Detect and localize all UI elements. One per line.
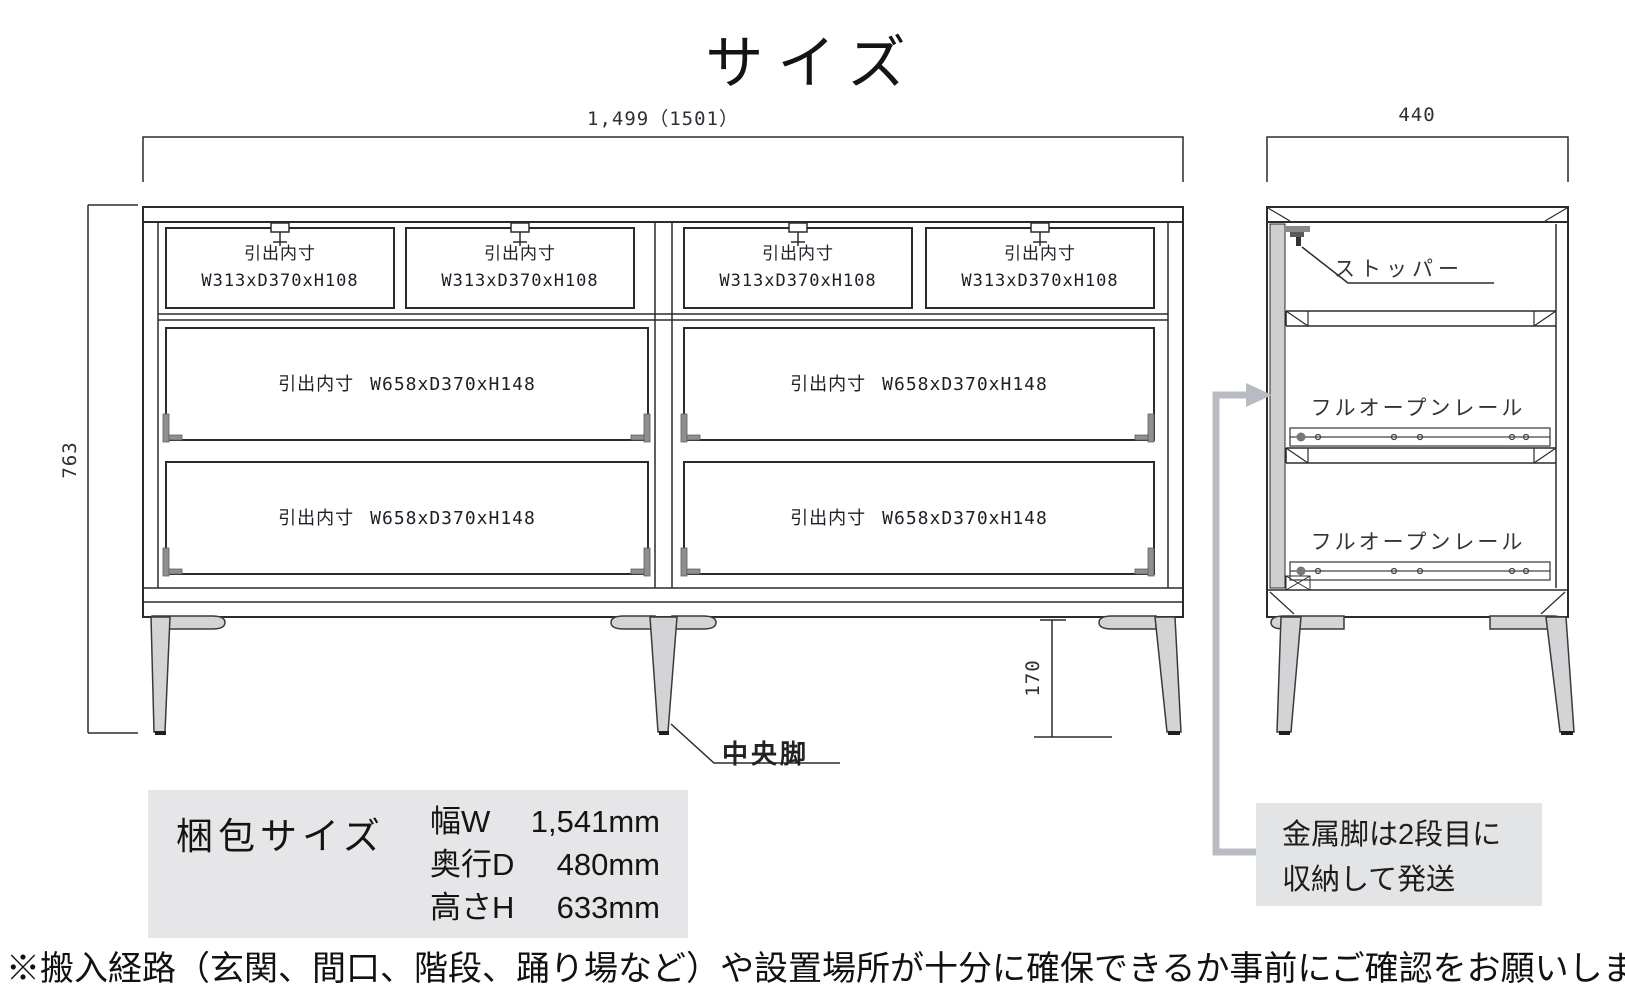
footer-note: ※搬入経路（玄関、間口、階段、踊り場など）や設置場所が十分に確保できるか事前にご… (6, 941, 1625, 990)
size-diagram-page: サイズ (0, 0, 1625, 1007)
small-drawer-label: 引出内寸 W313xD370xH108 (684, 228, 912, 308)
large-drawer-label: 引出内寸 W658xD370xH148 (684, 328, 1154, 440)
shipping-note-box: 金属脚は2段目に 収納して発送 (1256, 803, 1542, 906)
side-depth-dimension: 440 (1377, 104, 1457, 126)
small-drawer-label: 引出内寸 W313xD370xH108 (166, 228, 394, 308)
packing-row: 幅W 1,541mm (430, 800, 660, 843)
drawer-size: W313xD370xH108 (961, 268, 1118, 295)
drawer-size: W313xD370xH108 (201, 268, 358, 295)
large-drawer-label: 引出内寸 W658xD370xH148 (166, 462, 648, 574)
drawer-size: W313xD370xH108 (719, 268, 876, 295)
packing-row: 高さH 633mm (430, 886, 660, 929)
shipping-note-arrow (1216, 383, 1272, 852)
small-drawer-label: 引出内寸 W313xD370xH108 (926, 228, 1154, 308)
packing-row-value: 480mm (557, 843, 660, 886)
front-leg-height-dimension: 170 (1020, 648, 1046, 708)
shipping-note-line: 金属脚は2段目に (1282, 813, 1542, 858)
drawer-size: W658xD370xH148 (882, 505, 1048, 532)
packing-size-title: 梱包サイズ (176, 806, 385, 860)
full-open-rail-label: フルオープンレール (1303, 392, 1533, 422)
side-legs (1271, 616, 1574, 735)
full-open-rail-label: フルオープンレール (1303, 526, 1533, 556)
drawer-name: 引出内寸 (1004, 241, 1076, 268)
large-drawer-label: 引出内寸 W658xD370xH148 (684, 462, 1154, 574)
drawer-name: 引出内寸 (278, 505, 354, 532)
drawer-size: W658xD370xH148 (370, 371, 536, 398)
drawer-size: W313xD370xH108 (441, 268, 598, 295)
front-width-dimension: 1,499（1501） (493, 104, 833, 131)
drawer-name: 引出内寸 (790, 371, 866, 398)
center-leg-label: 中央脚 (722, 734, 809, 771)
side-dimension-lines (1267, 137, 1568, 182)
full-open-rail-graphics (1290, 428, 1550, 580)
packing-row-value: 633mm (557, 886, 660, 929)
packing-row: 奥行D 480mm (430, 843, 660, 886)
drawer-name: 引出内寸 (278, 371, 354, 398)
large-drawer-label: 引出内寸 W658xD370xH148 (166, 328, 648, 440)
drawer-name: 引出内寸 (790, 505, 866, 532)
stopper-label: ストッパー (1334, 253, 1464, 283)
front-height-dimension: 763 (57, 430, 83, 490)
packing-row-label: 奥行D (430, 843, 514, 886)
drawer-size: W658xD370xH148 (882, 371, 1048, 398)
packing-row-value: 1,541mm (531, 800, 660, 843)
shipping-note-line: 収納して発送 (1282, 858, 1542, 903)
drawer-size: W658xD370xH148 (370, 505, 536, 532)
packing-size-rows: 幅W 1,541mm 奥行D 480mm 高さH 633mm (430, 800, 660, 929)
packing-row-label: 幅W (430, 800, 490, 843)
small-drawer-label: 引出内寸 W313xD370xH108 (406, 228, 634, 308)
drawer-name: 引出内寸 (484, 241, 556, 268)
drawer-name: 引出内寸 (244, 241, 316, 268)
packing-row-label: 高さH (430, 886, 514, 929)
packing-size-box: 梱包サイズ 幅W 1,541mm 奥行D 480mm 高さH 633mm (148, 790, 688, 938)
drawer-name: 引出内寸 (762, 241, 834, 268)
